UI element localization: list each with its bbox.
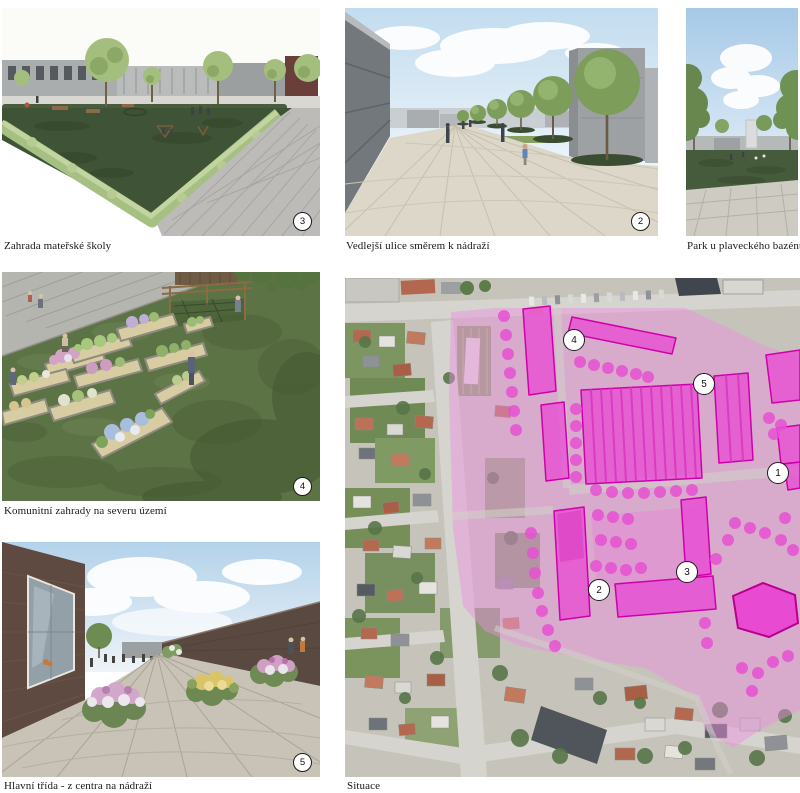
caption-community-gardens: Komunitní zahrady na severu území [4,505,167,517]
site-plan-badges: 12345 [345,278,800,777]
panel-main-street-render: 5 [2,542,320,777]
main-street-illustration [2,542,320,777]
garden-illustration [2,8,320,236]
site-plan-badge-4: 4 [563,329,585,351]
panel-badge-main-street: 5 [293,753,312,772]
caption-pool-park: Park u plaveckého bazénu [687,240,800,252]
site-plan-badge-2: 2 [588,579,610,601]
caption-site-plan: Situace [347,780,380,792]
caption-side-street: Vedlejší ulice směrem k nádraží [346,240,490,252]
panel-side-street-render: 2 [345,8,658,236]
pool-park-illustration [686,8,798,236]
site-plan-badge-1: 1 [767,462,789,484]
side-street-illustration [345,8,658,236]
panel-badge-garden: 3 [293,212,312,231]
panel-community-gardens-render: 4 [2,272,320,501]
site-plan-badge-3: 3 [676,561,698,583]
panel-badge-side-street: 2 [631,212,650,231]
panel-badge-community-gardens: 4 [293,477,312,496]
panel-garden-render: 3 [2,8,320,236]
presentation-board: 3 Zahrada mateřské školy [0,0,800,793]
community-gardens-illustration [2,272,320,501]
caption-main-street: Hlavní třída - z centra na nádraží [4,780,152,792]
panel-pool-park-render [686,8,798,236]
panel-site-plan: 12345 [345,278,800,777]
caption-garden: Zahrada mateřské školy [4,240,111,252]
site-plan-badge-5: 5 [693,373,715,395]
